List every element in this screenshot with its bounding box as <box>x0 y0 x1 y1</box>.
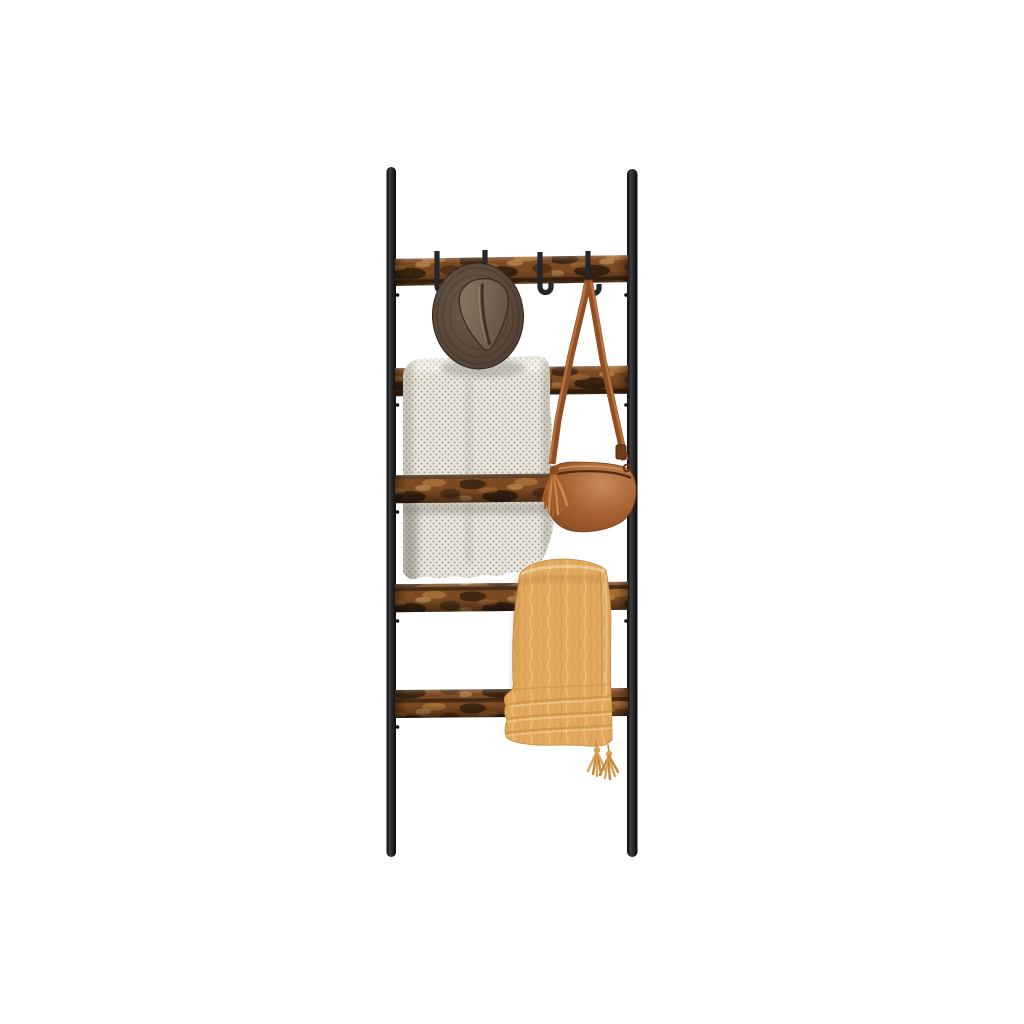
product-photo: Black steel ladder frame Rustic brown wo… <box>0 0 1024 1024</box>
bag-tassel-knot <box>550 466 559 475</box>
crossbody-bag: Brown leather crossbody bag with tassel <box>543 462 636 532</box>
strap-buckle <box>616 445 626 459</box>
muslin-throw-body <box>504 559 612 746</box>
knit-blanket-body <box>403 356 554 579</box>
left-pole <box>387 167 397 857</box>
product-photo-canvas: Black steel ladder frame Rustic brown wo… <box>0 0 1024 1024</box>
knit-blanket: Cream knitted blanket <box>400 356 555 585</box>
